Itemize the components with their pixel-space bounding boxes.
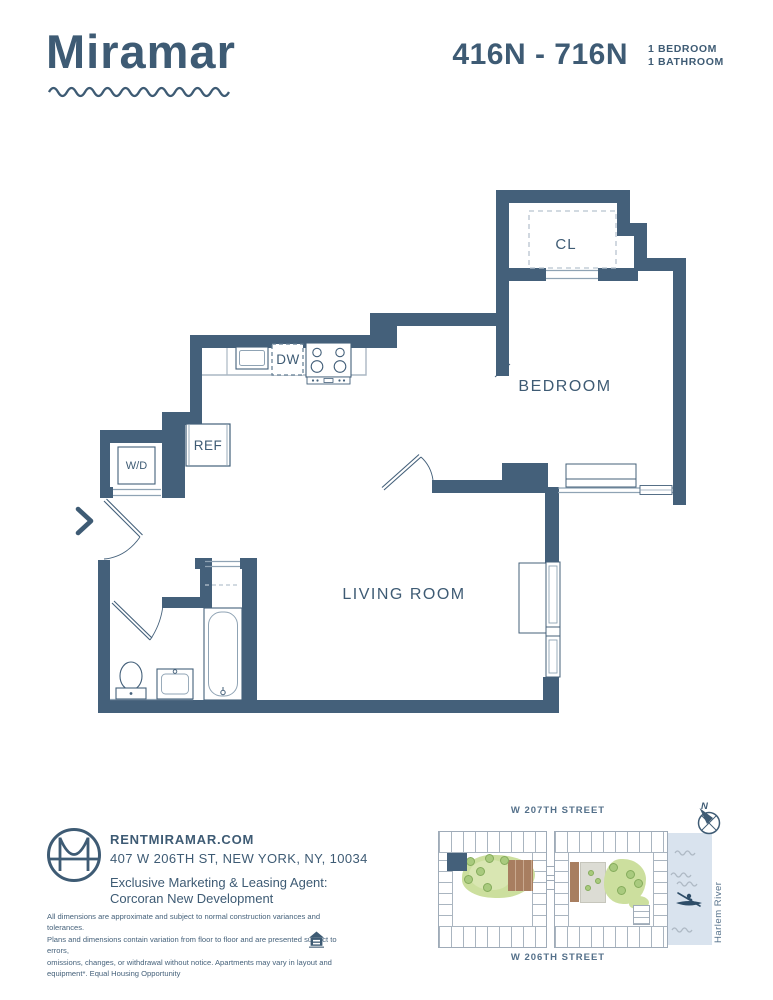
tree-icon [634, 879, 643, 888]
river-label: Harlem River [713, 859, 724, 943]
building-address: 407 W 206TH ST, NEW YORK, NY, 10034 [110, 851, 368, 866]
bedroom-door [382, 364, 510, 490]
street-label-north: W 207TH STREET [468, 805, 648, 816]
miramar-monogram-logo [45, 826, 103, 884]
unit-grid [532, 852, 546, 927]
tree-icon [485, 854, 494, 863]
closet-label: CL [555, 236, 576, 253]
toilet [116, 662, 146, 699]
tree-icon [609, 863, 618, 872]
legal-disclaimer: All dimensions are approximate and subje… [47, 911, 337, 979]
courtyard-walkway [580, 862, 606, 903]
unit-grid [439, 832, 546, 853]
kitchen-fixtures [118, 338, 366, 485]
kayaker-icon [675, 891, 703, 909]
leasing-agent-line2: Corcoran New Development [110, 891, 273, 906]
unit-grid [439, 926, 546, 947]
bathtub [204, 608, 242, 700]
disclaimer-line: equipment*. Equal Housing Opportunity [47, 968, 337, 979]
corridor [546, 880, 555, 890]
wave-icon [674, 848, 696, 858]
washer-dryer-label: W/D [126, 460, 147, 472]
stove [306, 343, 351, 384]
equal-housing-opportunity-icon [308, 931, 325, 948]
tree-icon [476, 867, 485, 876]
tree-icon [483, 883, 492, 892]
compass-north-icon: N [692, 798, 726, 838]
disclaimer-line: Plans and dimensions contain variation f… [47, 934, 337, 957]
street-label-south: W 206TH STREET [468, 952, 648, 963]
tree-icon [626, 870, 635, 879]
entry-door [104, 499, 143, 559]
corridor [546, 866, 555, 876]
dishwasher-label: DW [276, 352, 300, 367]
courtyard-deck [508, 860, 533, 891]
living-room-label: LIVING ROOM [342, 586, 465, 603]
tree-icon [617, 886, 626, 895]
wave-icon [671, 925, 693, 935]
tree-icon [464, 875, 473, 884]
tree-icon [466, 857, 475, 866]
site-map: W 207TH STREET W 206TH STREET Harlem Riv… [433, 797, 773, 987]
highlighted-unit [447, 853, 467, 871]
unit-grid [555, 832, 667, 853]
bathroom-door [112, 601, 163, 640]
tree-icon [500, 856, 509, 865]
unit-grid [555, 852, 569, 927]
refrigerator-label: REF [194, 438, 223, 453]
wave-icon [676, 879, 698, 889]
tree-icon [588, 870, 594, 876]
bedroom-label: BEDROOM [518, 378, 611, 395]
bedroom-radiator [566, 464, 672, 495]
unit-grid [653, 852, 667, 927]
living-room-window [519, 562, 560, 677]
entry-arrow-icon [78, 509, 91, 533]
tree-icon [585, 885, 591, 891]
pier [633, 905, 650, 925]
disclaimer-line: All dimensions are approximate and subje… [47, 911, 337, 934]
website-url: RENTMIRAMAR.COM [110, 832, 254, 847]
tree-icon [595, 878, 601, 884]
courtyard-deck [570, 862, 579, 902]
unit-grid [555, 926, 667, 947]
bathroom-sink [157, 669, 193, 699]
disclaimer-line: omissions, changes, or withdrawal withou… [47, 957, 337, 968]
floorplan-sheet: Miramar 416N - 716N 1 BEDROOM 1 BATHROOM [0, 0, 773, 1000]
leasing-agent-line1: Exclusive Marketing & Leasing Agent: [110, 875, 328, 890]
